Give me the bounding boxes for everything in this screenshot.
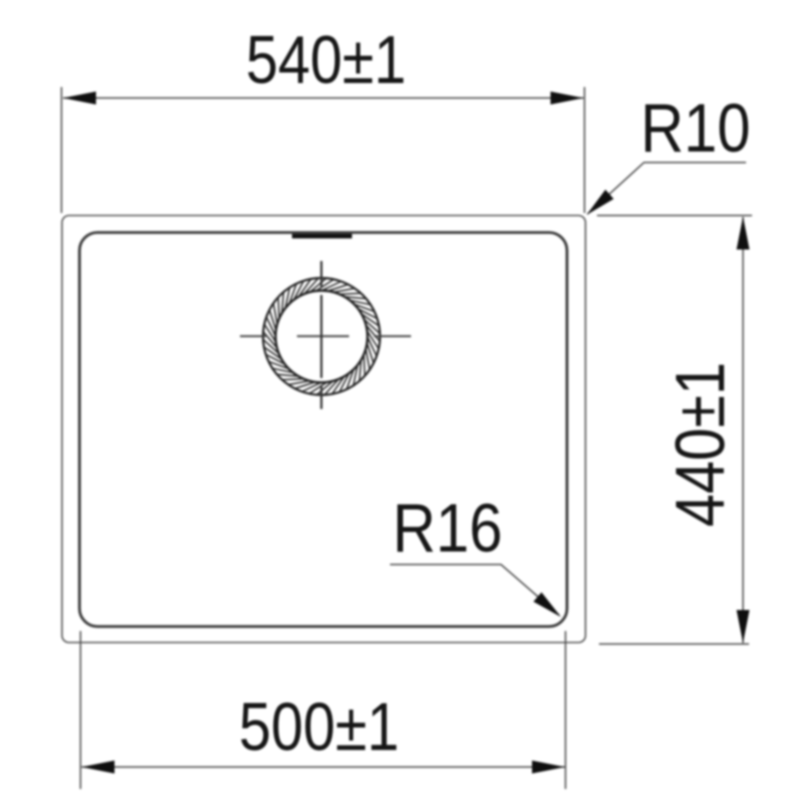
svg-text:R10: R10 — [640, 89, 750, 167]
svg-text:440±1: 440±1 — [660, 362, 739, 527]
svg-text:500±1: 500±1 — [239, 690, 399, 765]
svg-text:540±1: 540±1 — [246, 23, 406, 98]
svg-text:R16: R16 — [392, 489, 502, 567]
